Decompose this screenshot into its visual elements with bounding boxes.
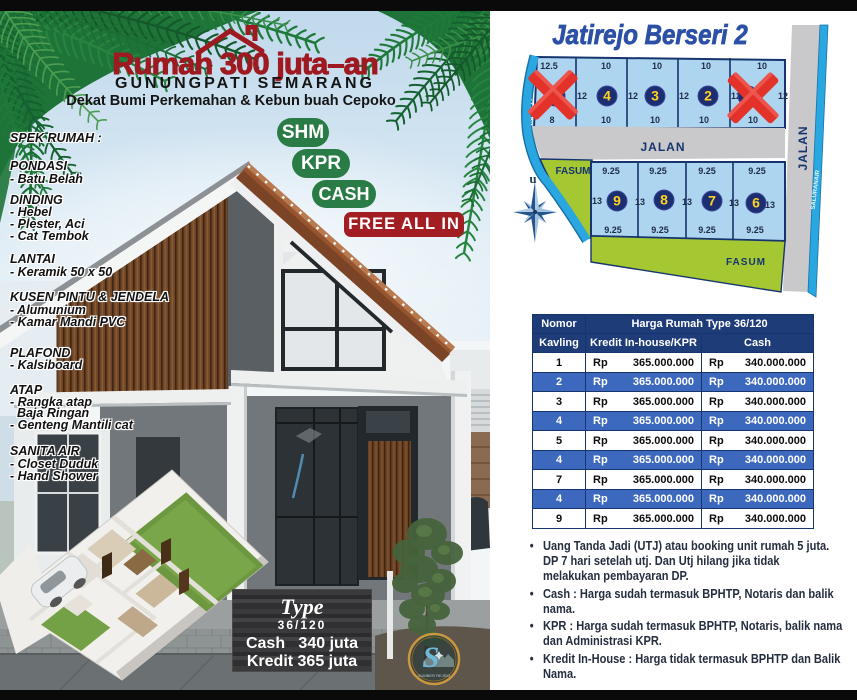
svg-text:8: 8 [660, 192, 668, 208]
svg-text:7: 7 [708, 193, 716, 209]
svg-text:13: 13 [592, 196, 602, 206]
svg-text:9.25: 9.25 [698, 166, 716, 176]
svg-text:6: 6 [752, 195, 760, 211]
svg-text:FASUM: FASUM [556, 166, 591, 177]
svg-text:SUMBER REJEKI: SUMBER REJEKI [418, 673, 450, 678]
svg-text:9.25: 9.25 [649, 166, 667, 176]
svg-text:9.25: 9.25 [698, 225, 716, 235]
svg-text:S: S [423, 641, 440, 674]
svg-text:12: 12 [628, 91, 638, 101]
svg-text:10: 10 [701, 61, 711, 71]
svg-text:JALAN: JALAN [796, 125, 810, 170]
svg-text:JALAN: JALAN [640, 140, 685, 154]
svg-text:13: 13 [765, 200, 775, 210]
svg-text:10: 10 [748, 115, 758, 125]
svg-text:9.25: 9.25 [651, 225, 669, 235]
svg-text:10: 10 [601, 115, 611, 125]
svg-text:10: 10 [652, 61, 662, 71]
svg-text:10: 10 [699, 115, 709, 125]
svg-text:12: 12 [577, 91, 587, 101]
svg-text:12: 12 [679, 91, 689, 101]
svg-text:9.25: 9.25 [602, 166, 620, 176]
svg-text:12.5: 12.5 [540, 61, 558, 71]
svg-text:u: u [529, 171, 536, 186]
svg-text:2: 2 [704, 88, 712, 104]
svg-text:9: 9 [613, 193, 621, 209]
svg-text:FASUM: FASUM [726, 257, 766, 268]
svg-text:8: 8 [549, 115, 554, 125]
svg-text:4: 4 [603, 88, 611, 104]
svg-text:13: 13 [682, 197, 692, 207]
svg-text:13: 13 [729, 198, 739, 208]
svg-text:10: 10 [601, 61, 611, 71]
svg-text:9.25: 9.25 [748, 166, 766, 176]
svg-text:13: 13 [635, 197, 645, 207]
svg-text:12: 12 [778, 91, 788, 101]
svg-text:10: 10 [757, 61, 767, 71]
svg-text:9.25: 9.25 [746, 225, 764, 235]
svg-text:9.25: 9.25 [604, 225, 622, 235]
svg-text:10: 10 [650, 115, 660, 125]
svg-text:3: 3 [651, 88, 659, 104]
